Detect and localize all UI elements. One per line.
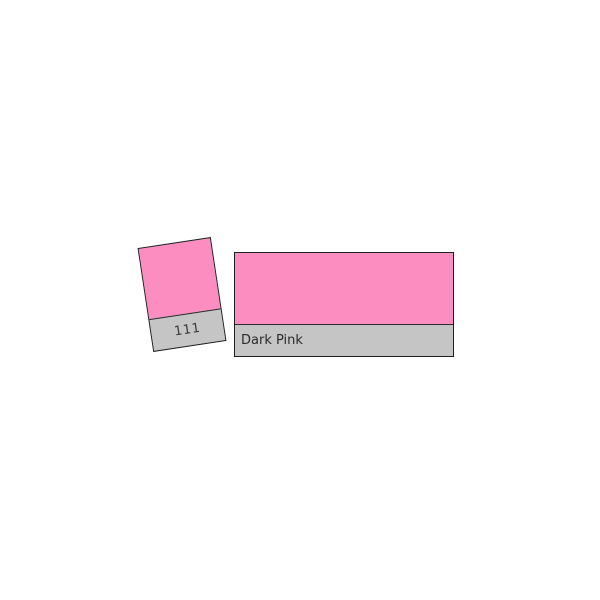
swatch-preview-canvas: 111 Dark Pink [0,0,600,600]
filter-name: Dark Pink [241,334,303,347]
color-bar-color-area [235,253,453,324]
filter-color-bar[interactable]: Dark Pink [234,252,454,357]
filter-swatch-card[interactable]: 111 [138,237,227,352]
swatch-color-area [139,238,221,319]
color-bar-name-strip: Dark Pink [235,324,453,356]
filter-code: 111 [173,322,201,339]
